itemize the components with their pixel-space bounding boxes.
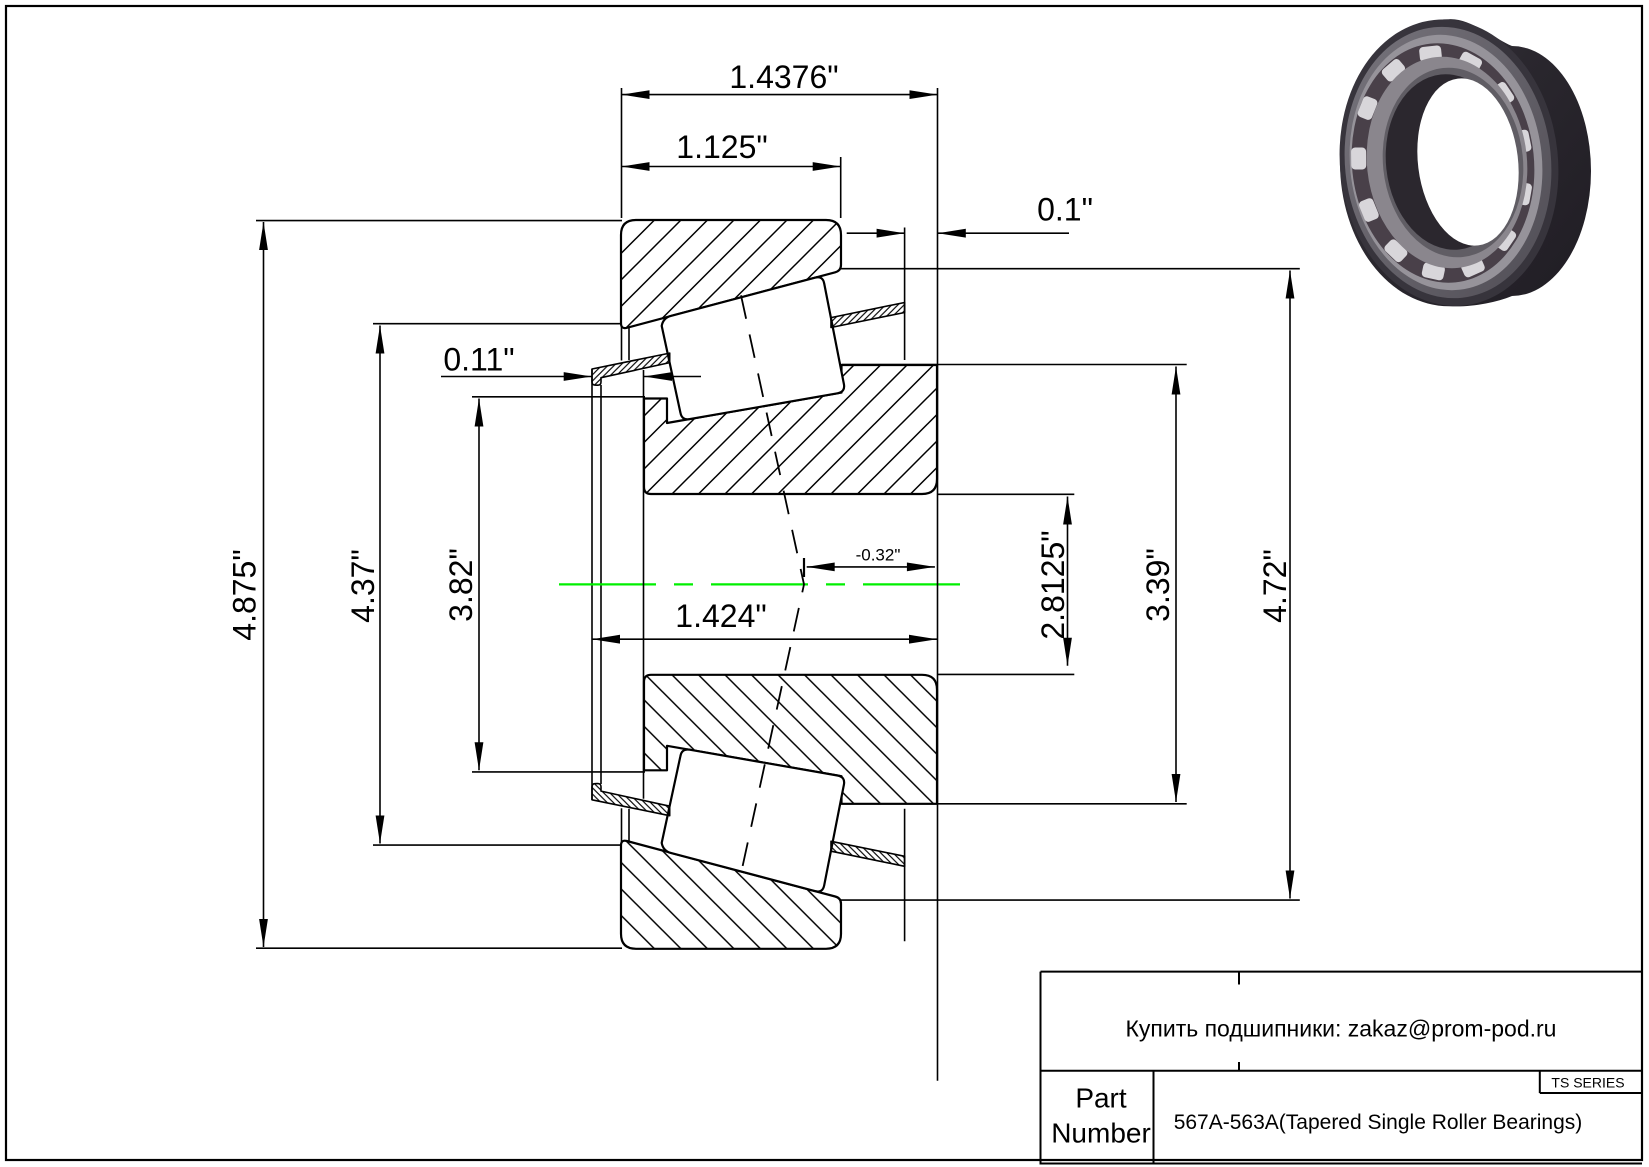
svg-text:0.11": 0.11" [443,342,514,378]
svg-text:TS SERIES: TS SERIES [1551,1075,1624,1091]
svg-text:1.424": 1.424" [675,598,766,634]
svg-text:567A-563A(Tapered Single Rolle: 567A-563A(Tapered Single Roller Bearings… [1174,1111,1583,1134]
svg-text:0.1": 0.1" [1037,192,1093,228]
svg-text:Купить подшипники: zakaz@prom-: Купить подшипники: zakaz@prom-pod.ru [1126,1016,1557,1042]
svg-text:4.72": 4.72" [1257,549,1293,623]
svg-text:Part: Part [1075,1083,1127,1114]
svg-text:1.125": 1.125" [676,129,767,165]
svg-text:3.82": 3.82" [443,548,479,622]
svg-text:1.4376": 1.4376" [729,59,838,95]
svg-text:Number: Number [1051,1118,1151,1149]
svg-text:4.37": 4.37" [345,549,381,623]
svg-text:3.39": 3.39" [1140,548,1176,622]
svg-text:4.875": 4.875" [227,549,263,640]
svg-text:-0.32": -0.32" [856,546,901,565]
svg-text:2.8125": 2.8125" [1035,530,1071,639]
